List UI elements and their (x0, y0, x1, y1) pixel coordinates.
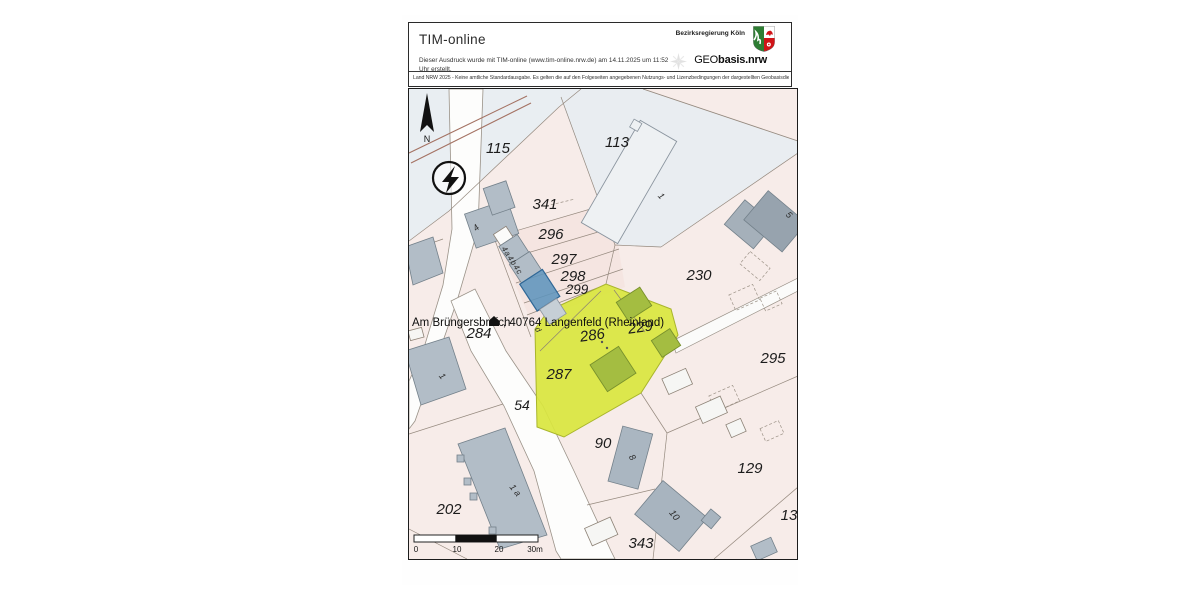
parcel-num-113: 113 (605, 134, 630, 151)
parcel-num-299: 299 (565, 282, 589, 297)
parcel-num-341: 341 (532, 196, 557, 213)
transformer-icon (433, 162, 465, 194)
parcel-num-284: 284 (465, 325, 491, 342)
cadastral-map: N Am Brüngersbroich , 40764 Langenfeld (… (409, 89, 797, 559)
scale-tick-20: 20 (495, 545, 504, 554)
map-point-dot (606, 347, 608, 349)
parcel-num-115: 115 (486, 140, 511, 157)
license-disclaimer: Land NRW 2025 - Keine amtliche Standarda… (413, 75, 789, 81)
header-divider (409, 71, 791, 72)
scale-tick-30m: 30m (527, 545, 543, 554)
nrw-coat-of-arms-icon (753, 26, 775, 52)
print-note-line1: Dieser Ausdruck wurde mit TIM-online (ww… (419, 57, 668, 64)
parcel-num-129: 129 (737, 460, 763, 477)
page-title: TIM-online (419, 32, 486, 47)
tim-online-print-screenshot: { "header": { "title": "TIM-online", "pr… (0, 0, 1200, 600)
parcel-num-13: 13 (781, 507, 797, 524)
parcel-num-296: 296 (537, 226, 564, 243)
north-label: N (424, 134, 431, 144)
geobasis-logo-suffix: basis.nrw (718, 54, 767, 66)
parcel-num-230: 230 (685, 267, 712, 284)
geobasis-logo: GEObasis.nrw (694, 54, 767, 66)
parcel-num-54: 54 (514, 397, 530, 413)
compass-rose-icon (670, 53, 687, 70)
parcel-num-297: 297 (550, 251, 577, 268)
scanned-print-page: TIM-online Dieser Ausdruck wurde mit TIM… (402, 15, 798, 585)
parcel-num-295: 295 (759, 350, 786, 367)
agency-name: Bezirksregierung Köln (676, 30, 745, 37)
parcel-num-343: 343 (628, 535, 654, 552)
parcel-num-90: 90 (595, 435, 612, 452)
parcel-num-202: 202 (435, 501, 462, 518)
parcel-num-287: 287 (545, 366, 572, 383)
scale-tick-0: 0 (414, 545, 419, 554)
geobasis-logo-prefix: GEO (694, 54, 718, 66)
scale-tick-10: 10 (453, 545, 462, 554)
map-frame: N Am Brüngersbroich , 40764 Langenfeld (… (408, 88, 798, 560)
print-header: TIM-online Dieser Ausdruck wurde mit TIM… (408, 22, 792, 87)
